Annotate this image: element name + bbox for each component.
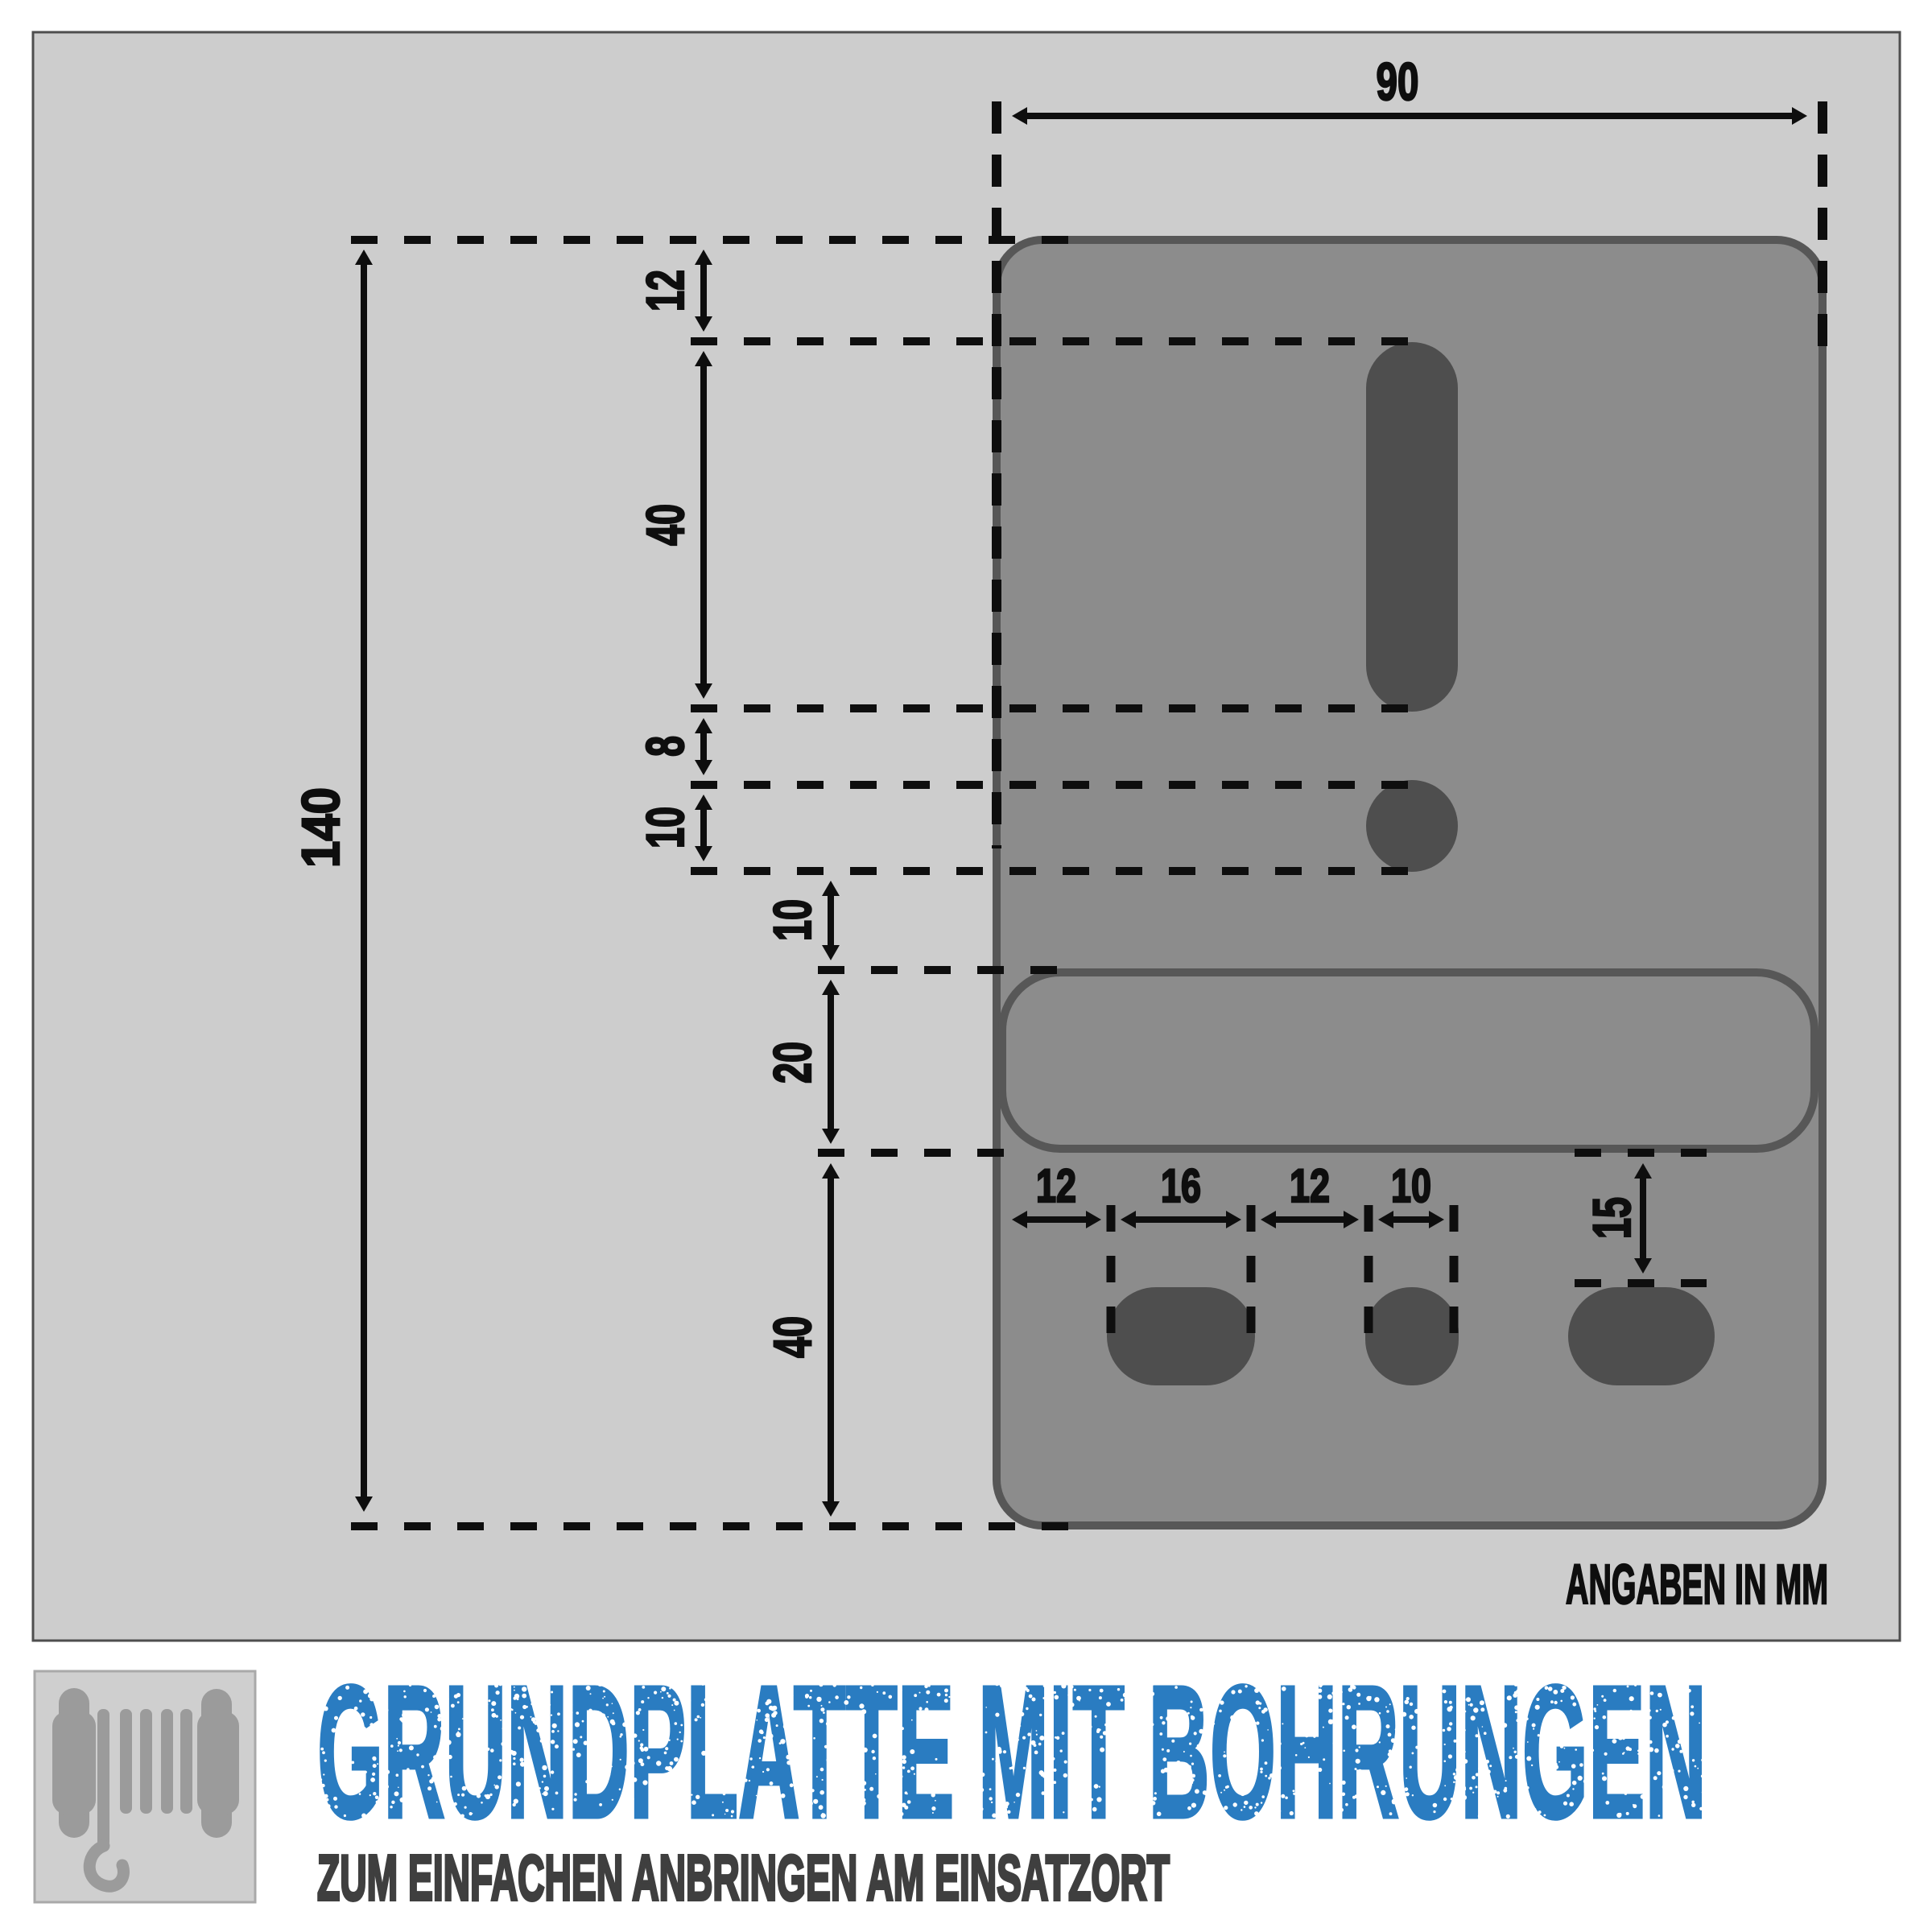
svg-text:12: 12 xyxy=(1290,1160,1330,1212)
svg-text:ANGABEN IN MM: ANGABEN IN MM xyxy=(1566,1553,1828,1616)
svg-text:16: 16 xyxy=(1161,1160,1201,1212)
svg-text:12: 12 xyxy=(635,270,695,312)
svg-text:10: 10 xyxy=(1391,1160,1431,1212)
svg-text:20: 20 xyxy=(762,1042,822,1084)
svg-text:140: 140 xyxy=(291,787,350,868)
svg-text:40: 40 xyxy=(635,504,695,546)
svg-text:12: 12 xyxy=(1036,1160,1076,1212)
svg-text:15: 15 xyxy=(1582,1197,1641,1239)
svg-text:8: 8 xyxy=(635,736,695,757)
svg-text:40: 40 xyxy=(762,1316,822,1358)
svg-text:ZUM EINFACHEN ANBRINGEN AM EIN: ZUM EINFACHEN ANBRINGEN AM EINSATZORT xyxy=(317,1842,1170,1913)
svg-text:10: 10 xyxy=(762,899,822,941)
svg-text:10: 10 xyxy=(635,807,695,848)
svg-text:90: 90 xyxy=(1377,52,1419,111)
